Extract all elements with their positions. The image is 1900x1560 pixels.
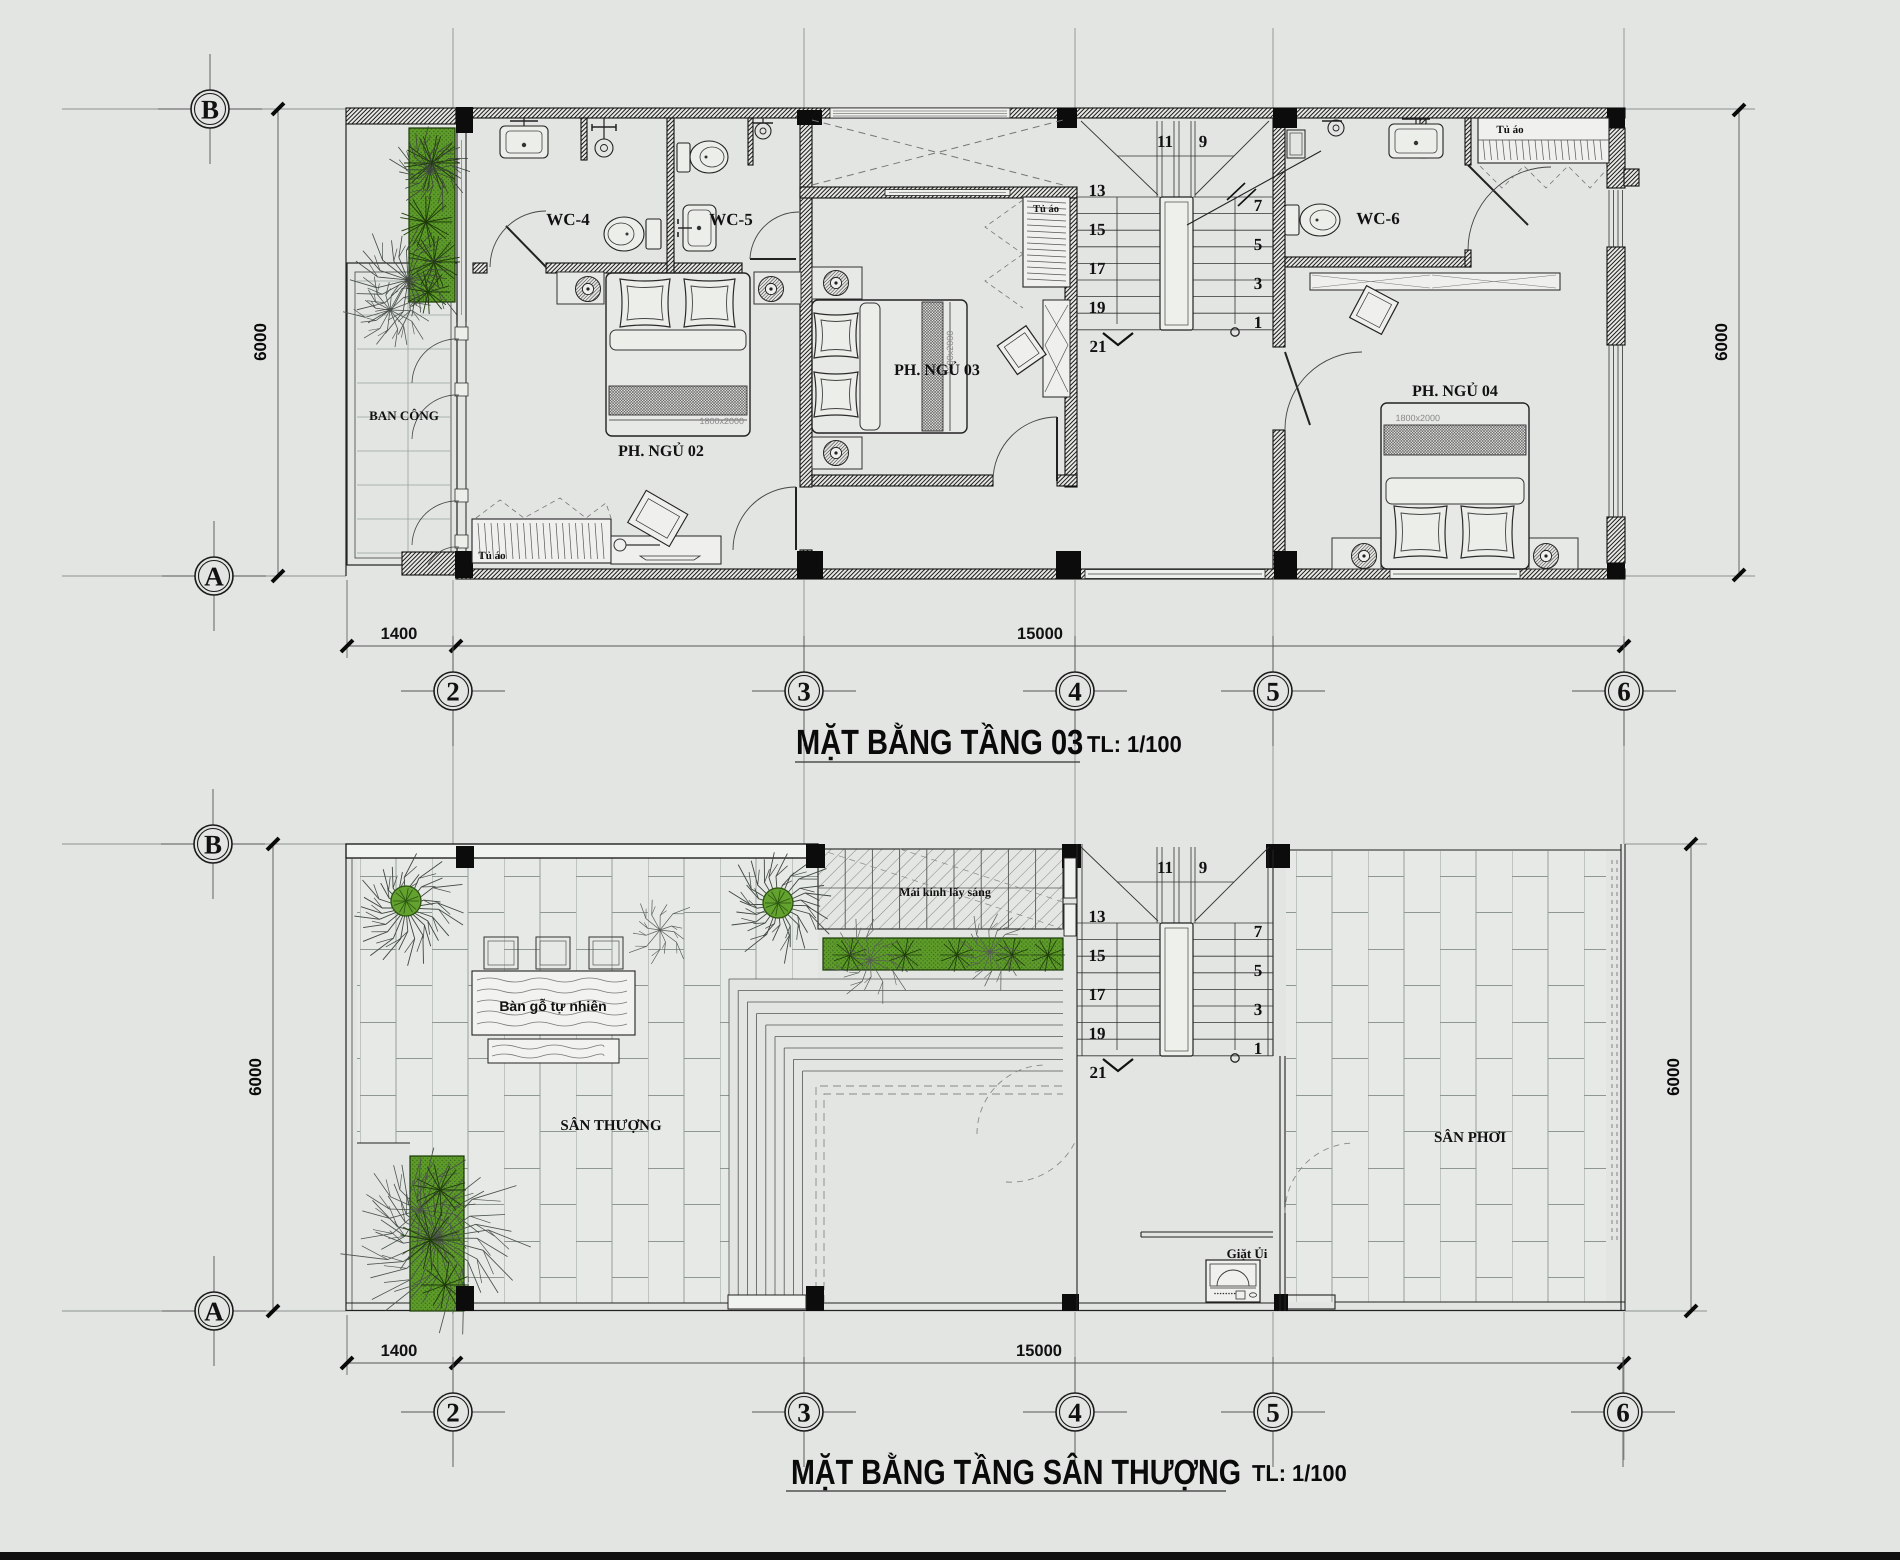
svg-text:B: B bbox=[204, 830, 222, 860]
svg-text:19: 19 bbox=[1089, 1024, 1106, 1043]
svg-text:1800x2000: 1800x2000 bbox=[1395, 413, 1440, 423]
svg-text:5: 5 bbox=[1266, 1398, 1280, 1428]
svg-text:WC-5: WC-5 bbox=[709, 210, 752, 229]
svg-text:13: 13 bbox=[1089, 907, 1106, 926]
svg-text:4: 4 bbox=[1068, 1398, 1082, 1428]
svg-text:PH. NGỦ 02: PH. NGỦ 02 bbox=[618, 442, 704, 460]
svg-text:15000: 15000 bbox=[1016, 1342, 1062, 1360]
svg-text:3: 3 bbox=[1254, 274, 1263, 293]
svg-text:WC-6: WC-6 bbox=[1356, 209, 1399, 228]
svg-text:SÂN THƯỢNG: SÂN THƯỢNG bbox=[560, 1116, 662, 1134]
svg-text:1: 1 bbox=[1254, 1039, 1263, 1058]
svg-text:4: 4 bbox=[1068, 677, 1082, 707]
svg-text:21: 21 bbox=[1090, 337, 1107, 356]
svg-text:WC-4: WC-4 bbox=[546, 210, 590, 229]
svg-text:A: A bbox=[204, 1297, 224, 1327]
svg-text:17: 17 bbox=[1089, 985, 1107, 1004]
svg-text:1: 1 bbox=[1254, 313, 1263, 332]
svg-text:15: 15 bbox=[1089, 946, 1106, 965]
svg-text:6: 6 bbox=[1617, 677, 1631, 707]
svg-text:A: A bbox=[204, 562, 224, 592]
svg-text:17: 17 bbox=[1089, 259, 1107, 278]
svg-text:21: 21 bbox=[1090, 1063, 1107, 1082]
svg-text:1800x2000: 1800x2000 bbox=[699, 416, 744, 426]
svg-text:7: 7 bbox=[1254, 196, 1263, 215]
svg-text:19: 19 bbox=[1089, 298, 1106, 317]
svg-text:6: 6 bbox=[1616, 1398, 1630, 1428]
svg-text:9: 9 bbox=[1199, 132, 1208, 151]
svg-text:15: 15 bbox=[1089, 220, 1106, 239]
svg-text:Giặt Ủi: Giặt Ủi bbox=[1227, 1246, 1268, 1261]
svg-text:TL: 1/100: TL: 1/100 bbox=[1252, 1460, 1347, 1486]
svg-text:BAN CÔNG: BAN CÔNG bbox=[369, 408, 439, 423]
svg-text:2: 2 bbox=[446, 677, 460, 707]
svg-text:SÂN PHƠI: SÂN PHƠI bbox=[1434, 1128, 1506, 1146]
svg-text:6000: 6000 bbox=[1664, 1058, 1683, 1096]
svg-text:11: 11 bbox=[1157, 858, 1173, 877]
svg-text:Bàn gỗ tự nhiên: Bàn gỗ tự nhiên bbox=[499, 998, 606, 1014]
svg-text:3: 3 bbox=[797, 677, 811, 707]
svg-text:5: 5 bbox=[1254, 235, 1263, 254]
svg-text:15000: 15000 bbox=[1017, 625, 1063, 643]
svg-text:3: 3 bbox=[797, 1398, 811, 1428]
svg-text:11: 11 bbox=[1157, 132, 1173, 151]
svg-text:PH. NGỦ 04: PH. NGỦ 04 bbox=[1412, 382, 1498, 400]
svg-text:5: 5 bbox=[1266, 677, 1280, 707]
svg-text:7: 7 bbox=[1254, 922, 1263, 941]
svg-text:Tủ áo: Tủ áo bbox=[1033, 204, 1059, 215]
svg-text:6000: 6000 bbox=[246, 1058, 265, 1096]
svg-text:1400: 1400 bbox=[381, 625, 418, 643]
svg-text:Tủ áo: Tủ áo bbox=[1496, 124, 1524, 136]
svg-text:1400: 1400 bbox=[381, 1342, 418, 1360]
svg-text:13: 13 bbox=[1089, 181, 1106, 200]
svg-text:6000: 6000 bbox=[1712, 323, 1731, 361]
svg-text:9: 9 bbox=[1199, 858, 1208, 877]
svg-text:3: 3 bbox=[1254, 1000, 1263, 1019]
svg-text:PH. NGỦ 03: PH. NGỦ 03 bbox=[894, 361, 980, 379]
svg-text:MẶT BẰNG TẦNG SÂN THƯỢNG: MẶT BẰNG TẦNG SÂN THƯỢNG bbox=[791, 1452, 1241, 1492]
svg-text:5: 5 bbox=[1254, 961, 1263, 980]
svg-text:B: B bbox=[201, 95, 219, 125]
svg-text:Mái kính lấy sáng: Mái kính lấy sáng bbox=[899, 885, 991, 899]
svg-text:TL: 1/100: TL: 1/100 bbox=[1087, 731, 1182, 757]
svg-text:2: 2 bbox=[446, 1398, 460, 1428]
svg-text:Tủ áo: Tủ áo bbox=[478, 550, 506, 562]
svg-text:MẶT BẰNG TẦNG 03: MẶT BẰNG TẦNG 03 bbox=[796, 722, 1083, 762]
svg-text:6000: 6000 bbox=[251, 323, 270, 361]
